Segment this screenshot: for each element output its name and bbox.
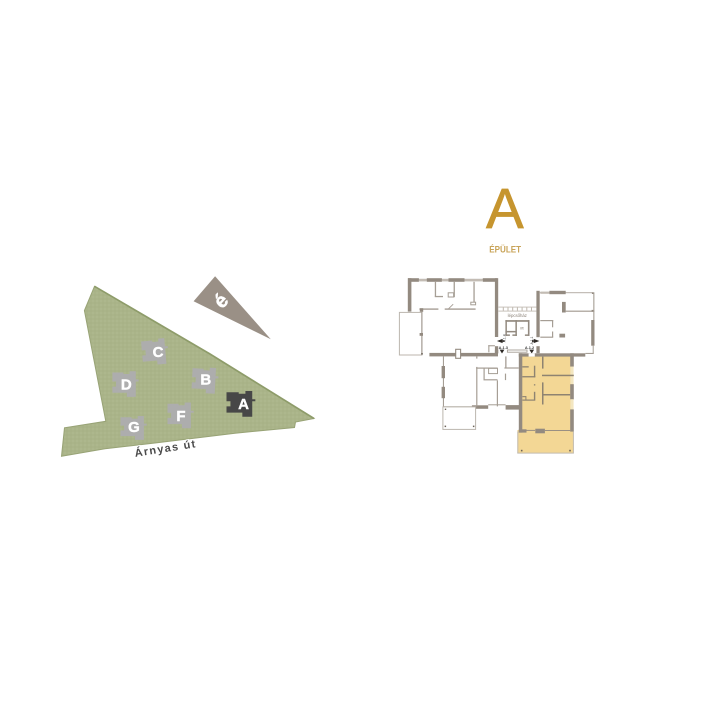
svg-text:A: A xyxy=(238,396,249,413)
svg-text:ÉPÜLET: ÉPÜLET xyxy=(489,244,521,256)
svg-text:A.1.1: A.1.1 xyxy=(530,336,534,344)
svg-text:A.1.2: A.1.2 xyxy=(525,345,535,350)
svg-text:C: C xyxy=(153,344,164,361)
svg-text:lépcsőház: lépcsőház xyxy=(508,313,527,318)
svg-text:A: A xyxy=(486,177,524,240)
svg-text:G: G xyxy=(128,419,140,436)
svg-text:lift: lift xyxy=(520,327,524,331)
svg-text:F: F xyxy=(176,408,185,425)
svg-text:B: B xyxy=(200,371,211,388)
svg-text:D: D xyxy=(121,376,132,393)
svg-text:A.1.4: A.1.4 xyxy=(503,334,507,342)
svg-text:A.1.3: A.1.3 xyxy=(499,345,509,350)
